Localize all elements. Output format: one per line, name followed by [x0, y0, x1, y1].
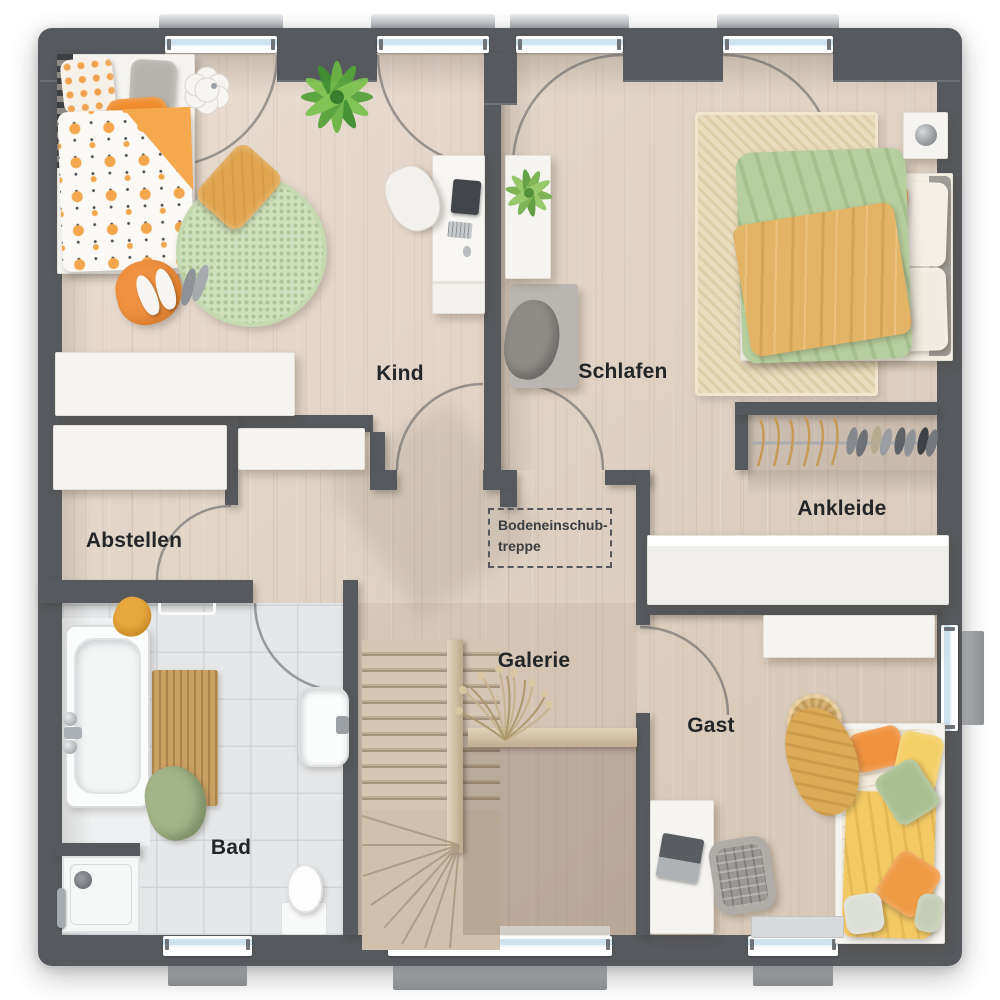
flower-side-table	[185, 67, 229, 114]
room-label-abstellen: Abstellen	[64, 529, 204, 553]
flower-table-item	[211, 83, 217, 89]
schlafen-plant-icon	[504, 168, 553, 217]
loft-ladder-label-line1: Bodeneinschub-	[498, 515, 610, 536]
room-label-schlafen: Schlafen	[553, 360, 693, 384]
room-label-bad: Bad	[171, 836, 291, 860]
loft-ladder-annotation: Bodeneinschub- treppe	[488, 508, 612, 568]
kind-plant-icon	[301, 61, 373, 133]
room-label-galerie: Galerie	[464, 649, 604, 673]
loft-ladder-label-line2: treppe	[498, 536, 610, 557]
room-label-gast: Gast	[651, 714, 771, 738]
floor-plan: Kind Schlafen Abstellen Ankleide Galerie…	[0, 0, 1000, 1000]
room-label-kind: Kind	[340, 362, 460, 386]
dried-grass-plant	[455, 665, 553, 740]
room-label-ankleide: Ankleide	[772, 497, 912, 521]
